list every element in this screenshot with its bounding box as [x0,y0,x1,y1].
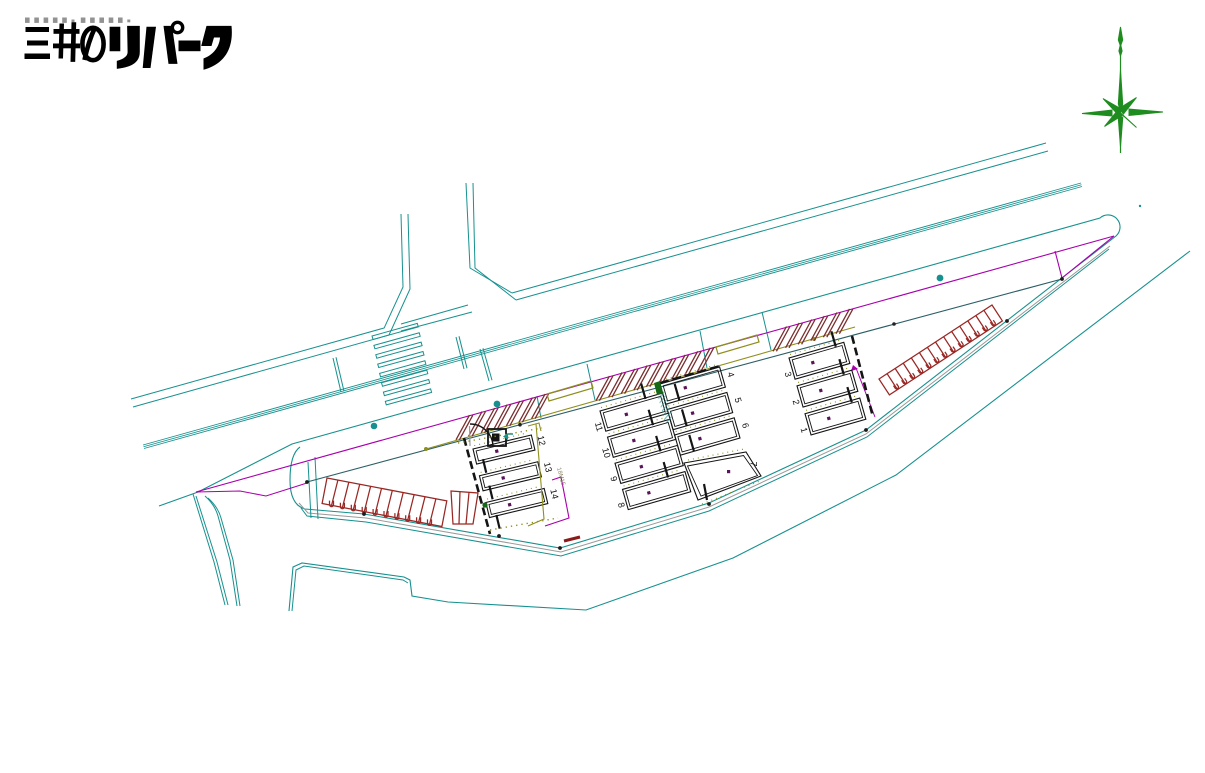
svg-text:7: 7 [749,461,759,466]
